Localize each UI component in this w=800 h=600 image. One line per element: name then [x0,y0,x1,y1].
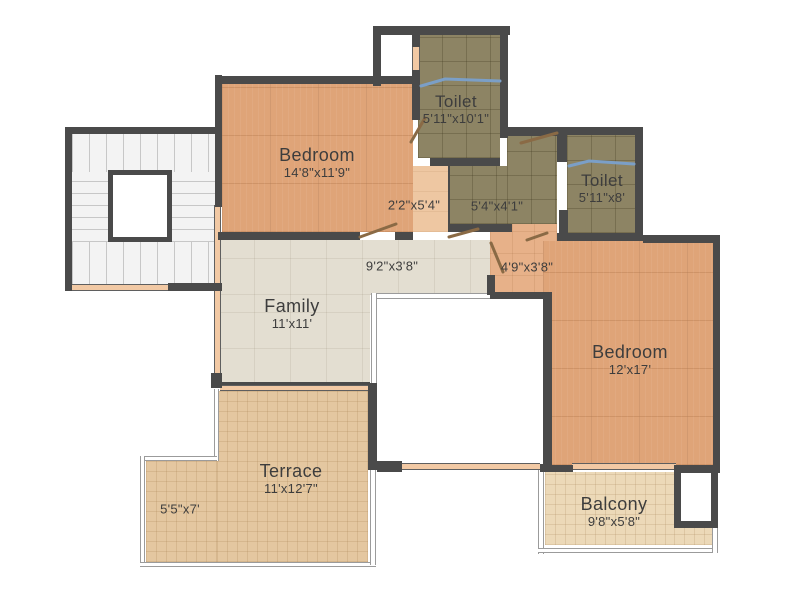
stair-run-left [72,172,110,242]
stair-run-top [72,134,215,172]
wall-toilet-top-left-a [412,33,420,47]
wall-balcony-shaft-right [711,465,718,528]
label-bedroom-right: Bedroom 12'x17' [592,342,668,378]
wall-void-top-right [490,292,543,299]
floor-toilet-lobby-b [448,166,507,224]
wall-family-bottom-line [220,382,370,385]
window-stair-bottom [70,284,168,291]
wall-stair-bottom [168,283,222,291]
railing-void-top [372,293,490,299]
window-bedroom-right-bottom [572,463,676,470]
railing-void-left [371,293,377,393]
wall-family-post [211,373,222,388]
room-dims: 5'11"x10'1" [423,111,489,126]
label-family: Family 11'x11' [264,296,319,332]
wall-bedroom-right-left [543,292,552,472]
label-terrace-side: 5'5"x7' [160,503,200,518]
wall-bedroom-top-bottom-a [218,232,360,240]
room-dims: 11'x11' [264,317,319,332]
wall-lobby-top [507,127,560,136]
floor-balcony-strip [674,528,712,545]
railing-terrace-ext-top [140,456,217,461]
wall-void-left [368,383,377,470]
wall-toilet-top-left-b [412,70,420,120]
wall-bedroom-right-top [643,235,720,243]
wall-void-stub [487,275,495,295]
wall-shaft-top [373,26,510,35]
label-toilet-right: Toilet 5'11"x8' [579,171,625,205]
room-dims: 5'11"x8' [579,190,625,205]
stair-run-bottom [72,242,215,287]
stair-run-right [172,172,215,242]
wall-stair-left [65,127,72,291]
wall-stair-top [65,127,222,134]
wall-toilet-right-top [557,127,643,135]
wall-bedroom-top-left [215,75,222,207]
stair-landing [108,170,172,242]
window-toilet-top-left [412,47,420,70]
label-toilet-lobby: 5'4"x4'1" [471,200,523,215]
wall-shaft-left [373,28,381,86]
room-dims: 9'8"x5'8" [581,515,648,530]
railing-balcony-left [538,470,544,554]
wall-bedroom-right-right [713,235,720,473]
room-dims: 11'x12'7" [260,482,323,497]
window-family-left [214,205,221,377]
wall-bedroom-top-top [218,76,420,84]
wall-balcony-shaft-left [674,465,681,528]
railing-balcony-right [712,526,718,553]
room-name: Family [264,296,319,317]
room-dims: 12'x17' [592,363,668,378]
wall-toilet-top-bottom [430,158,500,166]
label-bedroom-lobby: 4'9"x3'8" [501,261,553,276]
window-void-bottom [402,463,540,470]
floor-plan: Bedroom 14'8"x11'9" Toilet 5'11"x10'1" T… [0,0,800,600]
window-family-bottom [220,385,370,391]
label-bedroom-top: Bedroom 14'8"x11'9" [279,145,355,181]
label-passage-beside-bedroom-top: 2'2"x5'4" [388,199,440,214]
wall-toilet-right-right [635,127,643,240]
wall-lobby-left-line [448,166,450,224]
label-terrace: Terrace 11'x12'7" [260,461,323,497]
railing-terrace-upper-left [214,389,219,461]
wall-void-bottom-post-left [377,461,402,472]
wall-lobby-bottom [448,224,512,232]
label-toilet-top: Toilet 5'11"x10'1" [423,92,489,126]
wall-bedroom-top-bottom-b [395,232,413,240]
label-balcony: Balcony 9'8"x5'8" [581,494,648,530]
room-name: Bedroom [279,145,355,166]
railing-terrace-left [140,456,145,567]
room-name: Toilet [579,171,625,191]
room-name: Toilet [423,92,489,112]
room-name: Bedroom [592,342,668,363]
floor-hall [218,240,490,295]
wall-balcony-shaft-bottom [674,521,718,528]
wall-toilet-right-left-b [559,210,568,235]
label-hall: 9'2"x3'8" [366,260,418,275]
wall-toilet-top-right [500,26,508,138]
wall-toilet-right-left-a [557,127,567,162]
room-name: Terrace [260,461,323,482]
railing-terrace-right [370,470,376,565]
room-name: Balcony [581,494,648,515]
wall-toilet-right-bottom [557,233,643,241]
room-dims: 14'8"x11'9" [279,166,355,181]
railing-terrace-bottom [140,562,376,567]
wall-bedroom-right-bottom-left [543,465,573,472]
railing-balcony-bottom [538,548,718,553]
